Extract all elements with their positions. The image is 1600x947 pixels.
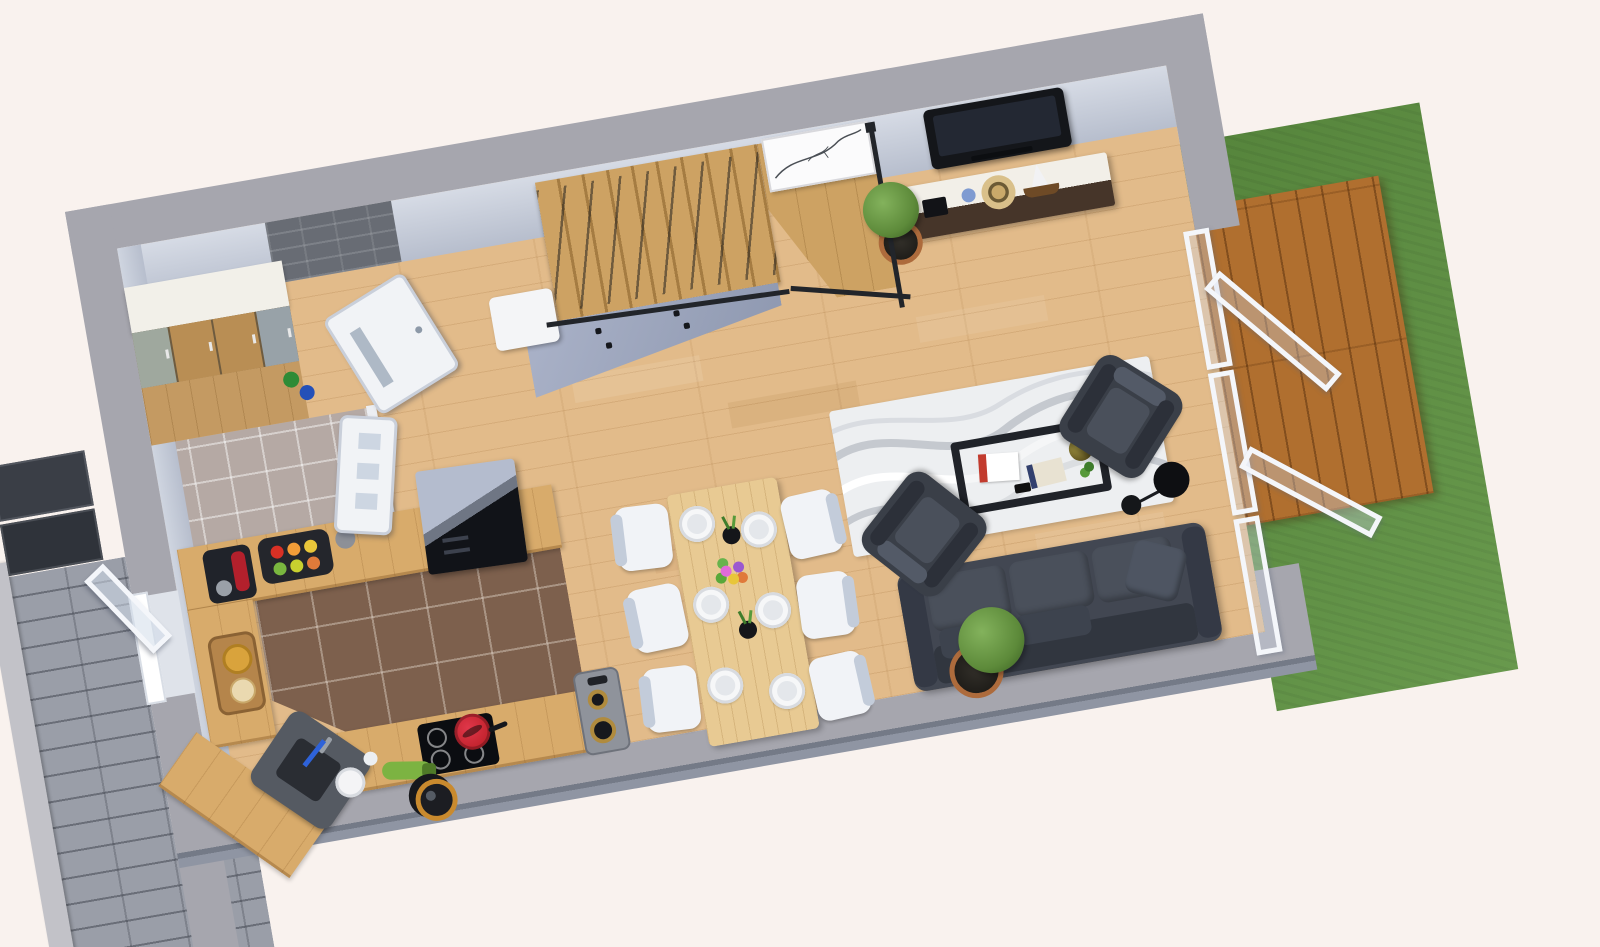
coffee-machine (201, 543, 258, 604)
dining-chair (795, 570, 857, 641)
burner (425, 726, 448, 749)
straw-hat (979, 173, 1018, 212)
sailboat-hull (1023, 183, 1060, 199)
floorplan-render (0, 0, 1600, 947)
wardrobe-door (213, 312, 264, 374)
wardrobe-door (169, 320, 220, 382)
red-cooking-pot (452, 711, 494, 753)
decor-plate (961, 187, 977, 203)
black-tray (922, 196, 949, 218)
magazine (1026, 457, 1067, 489)
interior-door (334, 415, 398, 536)
magazine (978, 452, 1020, 483)
dining-chair (641, 664, 702, 734)
fridge (415, 458, 528, 575)
railing-post (865, 121, 877, 133)
hall-bench (488, 288, 560, 352)
dining-chair (613, 502, 674, 572)
remote-control (1014, 482, 1031, 494)
small-plant (1083, 461, 1095, 473)
